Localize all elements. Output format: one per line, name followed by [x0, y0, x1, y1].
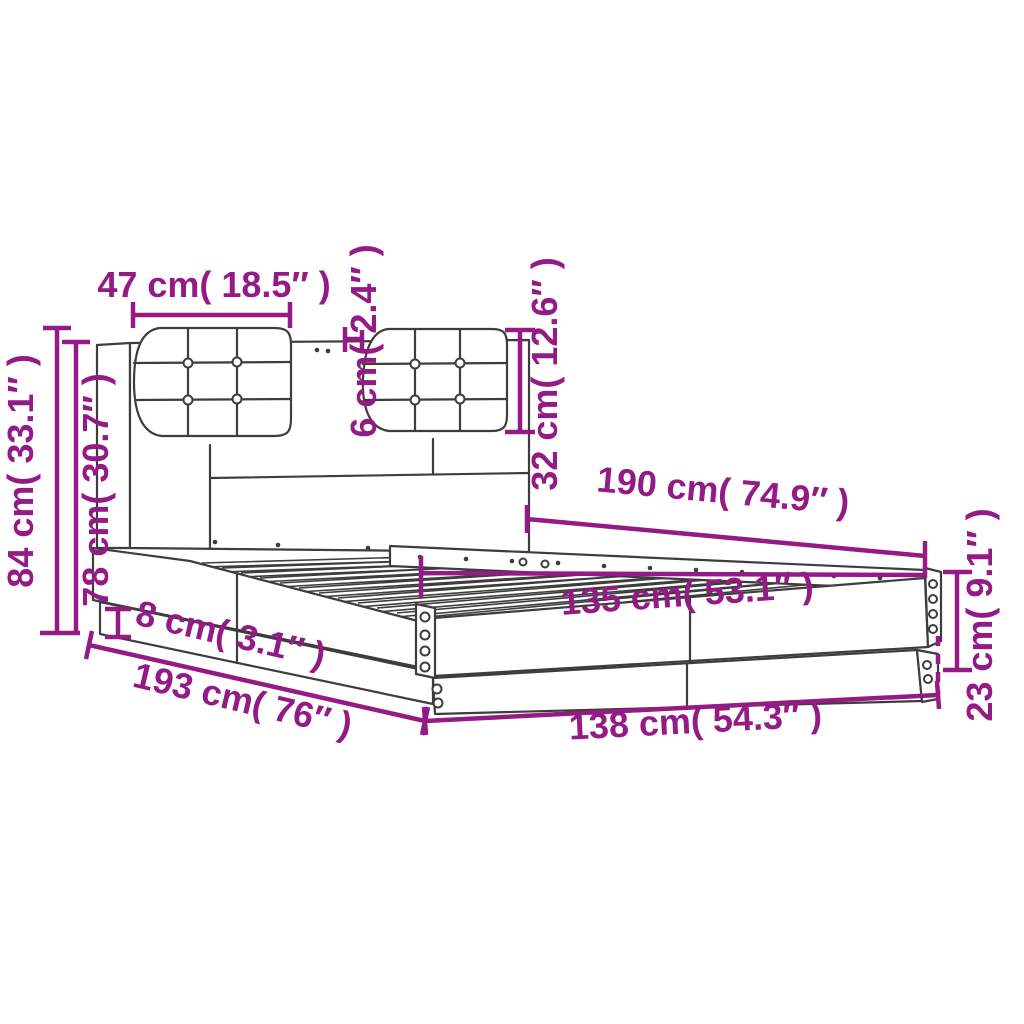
cushion-right-body	[363, 329, 507, 431]
cushion-right	[363, 329, 507, 431]
rail-hook-right	[542, 561, 549, 568]
dim-headboard-height: 78 cm( 30.7″ )	[62, 342, 116, 633]
dim-cushion-width: 47 cm( 18.5″ )	[97, 264, 330, 328]
dim-frame-height: 23 cm( 9.1″ )	[938, 508, 1000, 721]
cushion-left-body	[134, 328, 291, 436]
rail-hook-left	[520, 559, 527, 566]
dim-cushion-height-label: 32 cm( 12.6″ )	[524, 257, 565, 490]
dim-total-height: 84 cm( 33.1″ )	[0, 328, 80, 633]
dim-cushion-depth: 6 cm( 2.4″ )	[343, 244, 384, 437]
dim-headboard-height-label: 78 cm( 30.7″ )	[75, 373, 116, 606]
dim-cushion-width-label: 47 cm( 18.5″ )	[97, 264, 330, 305]
dim-inner-length-label: 190 cm( 74.9″ )	[595, 458, 851, 522]
dim-total-height-label: 84 cm( 33.1″ )	[0, 354, 41, 587]
diagram-canvas: 47 cm( 18.5″ ) 6 cm( 2.4″ ) 32 cm( 12.6″…	[0, 0, 1024, 1024]
dim-frame-height-label: 23 cm( 9.1″ )	[959, 508, 1000, 721]
bed-dimension-diagram: 47 cm( 18.5″ ) 6 cm( 2.4″ ) 32 cm( 12.6″…	[0, 0, 1024, 1024]
cushion-left	[134, 328, 291, 436]
bed-line-art	[93, 328, 941, 714]
dim-cushion-depth-label: 6 cm( 2.4″ )	[343, 244, 384, 437]
